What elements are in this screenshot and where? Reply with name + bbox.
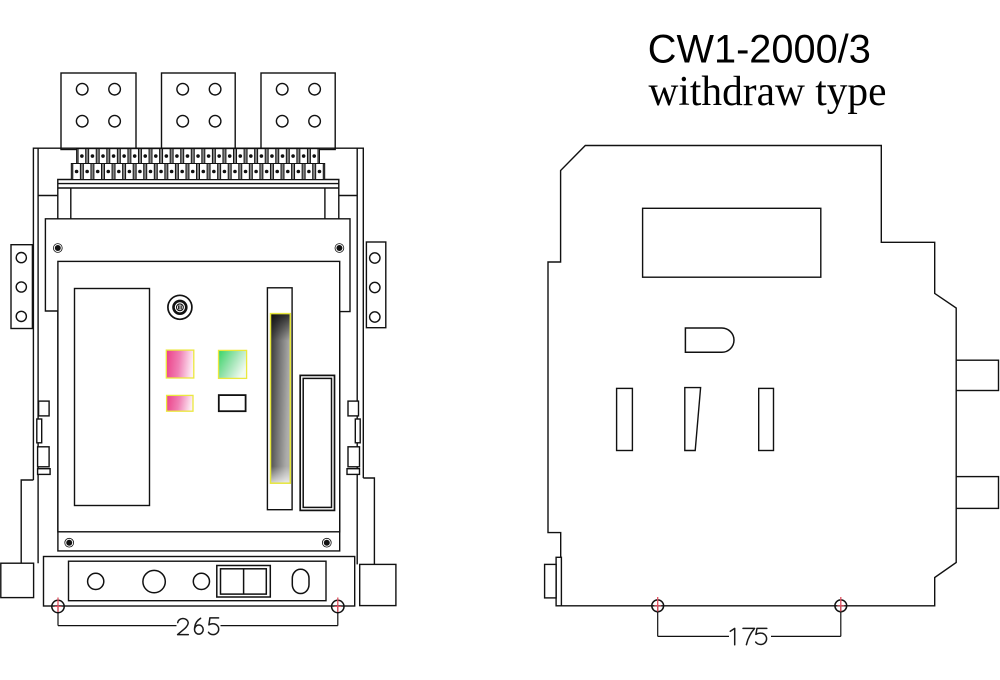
svg-text:CW1-2000/3: CW1-2000/3 <box>648 27 871 71</box>
svg-text:withdraw type: withdraw type <box>649 68 887 115</box>
